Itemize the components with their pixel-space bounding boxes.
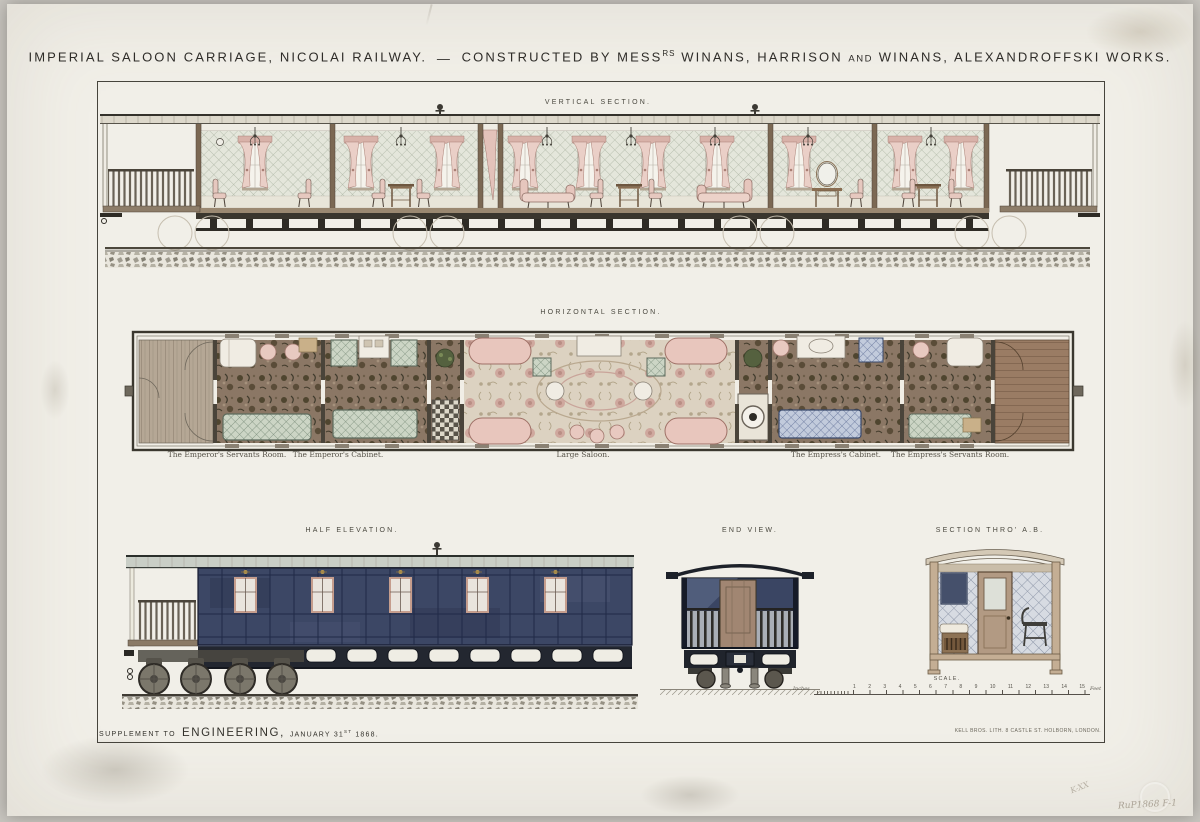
scale-baseline <box>814 694 1090 695</box>
scale-right-unit: Feet <box>1090 686 1101 692</box>
roof-ornament <box>436 104 760 115</box>
journal-name: ENGINEERING, <box>182 727 285 739</box>
title-dash: — <box>437 51 452 66</box>
roof <box>100 104 1100 124</box>
imprint-line: SUPPLEMENT TO ENGINEERING, JANUARY 31ST … <box>99 727 379 739</box>
right-platform <box>1000 123 1100 217</box>
imprint-date-sup: ST <box>344 729 352 734</box>
scale-title: SCALE. <box>912 676 982 682</box>
section-frieze <box>938 564 1052 572</box>
room-label-empress-cabinet: The Empress's Cabinet. <box>791 450 881 459</box>
end-roof <box>666 564 814 579</box>
plate-title: IMPERIAL SALOON CARRIAGE, NICOLAI RAILWA… <box>0 49 1200 64</box>
label-section-ab: SECTION THRO' A.B. <box>936 527 1045 534</box>
section-ab-drawing <box>920 540 1070 690</box>
title-names-mid: WINANS, HARRISON <box>681 49 842 64</box>
imprint-date-main: JANUARY 31 <box>290 731 344 738</box>
roof-finial <box>433 542 442 555</box>
wall-clock <box>217 139 224 146</box>
title-messrs-sup: RS <box>662 49 675 58</box>
left-platform <box>100 123 200 224</box>
elevation-roof <box>126 555 634 568</box>
room-label-large-saloon: Large Saloon. <box>557 450 610 459</box>
horizontal-section-drawing <box>125 328 1085 456</box>
label-horizontal-section: HORIZONTAL SECTION. <box>540 309 661 316</box>
embossed-stamp <box>1140 782 1170 812</box>
plan-right-platform <box>995 340 1069 443</box>
title-and: AND <box>848 53 873 64</box>
title-names-end: WINANS, ALEXANDROFFSKI WORKS. <box>879 49 1172 64</box>
elevation-track <box>122 694 638 709</box>
bogie <box>124 650 304 694</box>
room-label-emperor-cabinet: The Emperor's Cabinet. <box>293 450 384 459</box>
section-door <box>978 572 1012 656</box>
room-label-empress-servants: The Empress's Servants Room. <box>891 450 1009 459</box>
end-door <box>720 580 756 648</box>
imprint-date-year: 1868. <box>355 731 379 738</box>
room-label-emperor-servants: The Emperor's Servants Room. <box>168 450 287 459</box>
left-coupler <box>125 386 133 396</box>
elevation-platform <box>128 568 198 646</box>
label-end-view: END VIEW. <box>722 527 778 534</box>
floor-underframe <box>196 208 989 231</box>
label-half-elevation: HALF ELEVATION. <box>305 527 398 534</box>
lithograph-plate: IMPERIAL SALOON CARRIAGE, NICOLAI RAILWA… <box>0 0 1200 822</box>
imprint-date: JANUARY 31ST 1868. <box>290 729 379 738</box>
end-view-drawing <box>660 545 820 695</box>
plan-left-platform <box>139 340 213 443</box>
right-coupler <box>1073 386 1083 396</box>
half-elevation-drawing <box>110 538 650 710</box>
title-part1: IMPERIAL SALOON CARRIAGE, NICOLAI RAILWA… <box>29 49 428 64</box>
section-bunk <box>940 624 968 653</box>
scale-left-unit: Inches <box>793 686 810 692</box>
track-ballast <box>105 247 1090 268</box>
end-body <box>682 578 798 649</box>
title-constructed: CONSTRUCTED BY MESS <box>462 49 663 64</box>
vertical-section-drawing <box>100 100 1100 285</box>
supplement-text: SUPPLEMENT TO <box>99 731 176 738</box>
section-left-window <box>941 573 967 604</box>
printer-credit: KELL BROS. LITH. 8 CASTLE ST. HOLBORN, L… <box>955 728 1101 734</box>
